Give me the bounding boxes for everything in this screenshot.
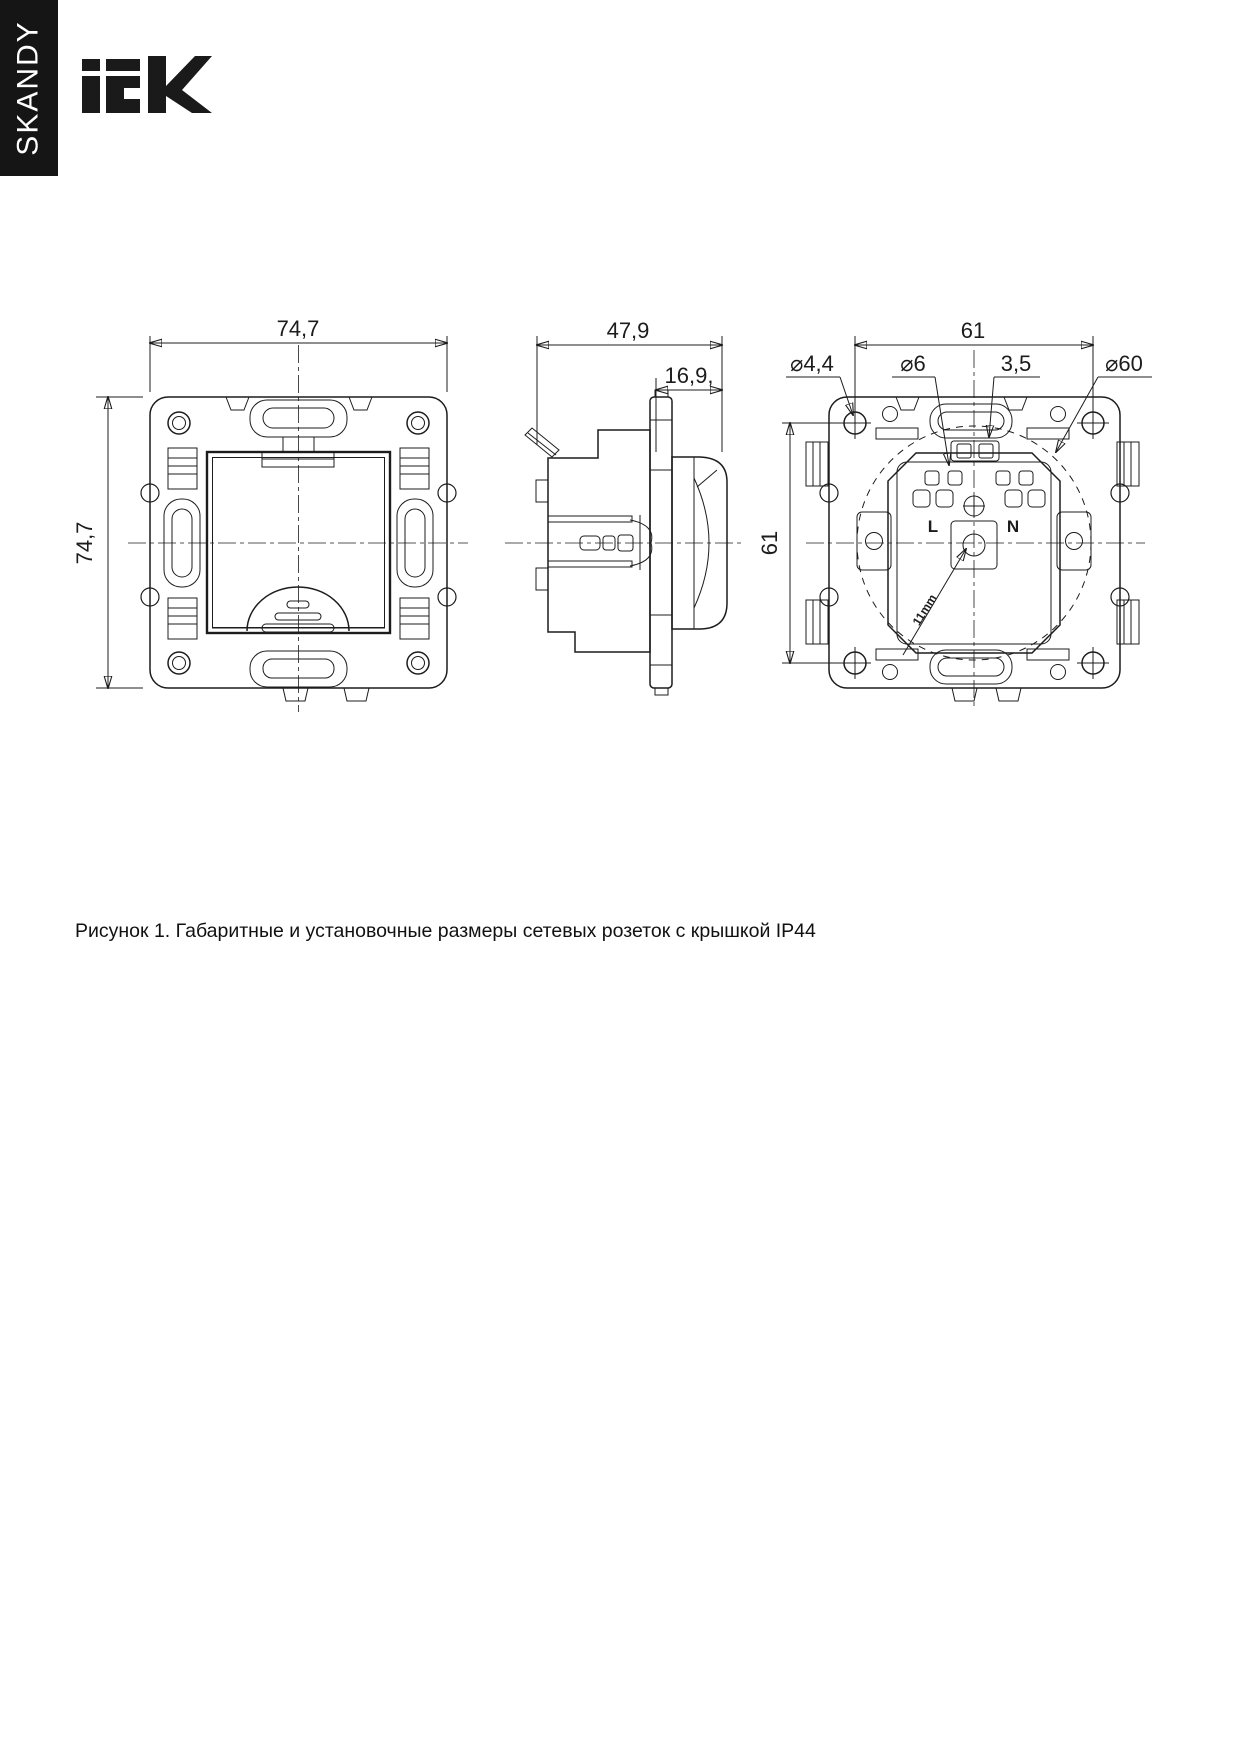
dim-box-diameter: ⌀60 <box>1105 351 1143 376</box>
side-screw-spring <box>580 515 652 570</box>
dim-side-front-depth: 16,9, <box>665 363 714 388</box>
front-view <box>128 345 468 712</box>
terminal-label-neutral: N <box>1007 517 1019 536</box>
dim-terminal-hole: ⌀6 <box>900 351 925 376</box>
side-view <box>505 390 745 695</box>
rear-view <box>806 350 1145 708</box>
datasheet-page: SKANDY <box>0 0 1239 1746</box>
wire-strip-length-label: 11mm <box>910 592 940 628</box>
dim-side-depth: 47,9 <box>607 318 650 343</box>
side-view-dimensions <box>537 336 722 452</box>
dim-screw: 3,5 <box>1001 351 1032 376</box>
figure-caption: Рисунок 1. Габаритные и установочные раз… <box>75 920 855 943</box>
dim-rear-spacing-h: 61 <box>961 318 985 343</box>
front-view-dimensions <box>96 336 447 688</box>
technical-drawing: 74,7 74,7 <box>0 0 1239 1746</box>
dim-fixing-hole: ⌀4,4 <box>790 351 834 376</box>
dim-rear-spacing-v: 61 <box>757 531 782 555</box>
dim-front-height: 74,7 <box>72 522 97 565</box>
dim-front-width: 74,7 <box>277 316 320 341</box>
terminal-label-line: L <box>928 517 938 536</box>
